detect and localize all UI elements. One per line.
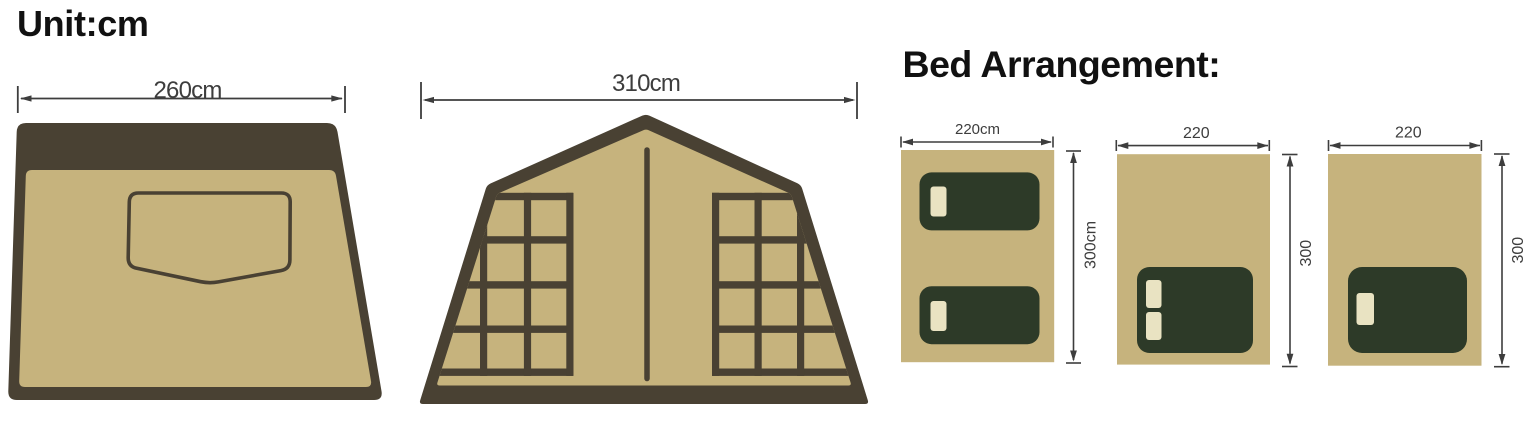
svg-text:300cm: 300cm [1083, 221, 1100, 269]
svg-text:310cm: 310cm [612, 70, 680, 97]
svg-text:260cm: 260cm [154, 77, 222, 104]
svg-text:220cm: 220cm [955, 121, 1000, 138]
svg-text:Unit:cm: Unit:cm [17, 3, 149, 44]
svg-text:220: 220 [1183, 125, 1210, 142]
svg-text:Bed Arrangement:: Bed Arrangement: [903, 43, 1221, 85]
svg-text:220: 220 [1395, 125, 1422, 142]
svg-text:300: 300 [1298, 240, 1315, 267]
svg-text:300: 300 [1510, 237, 1527, 264]
